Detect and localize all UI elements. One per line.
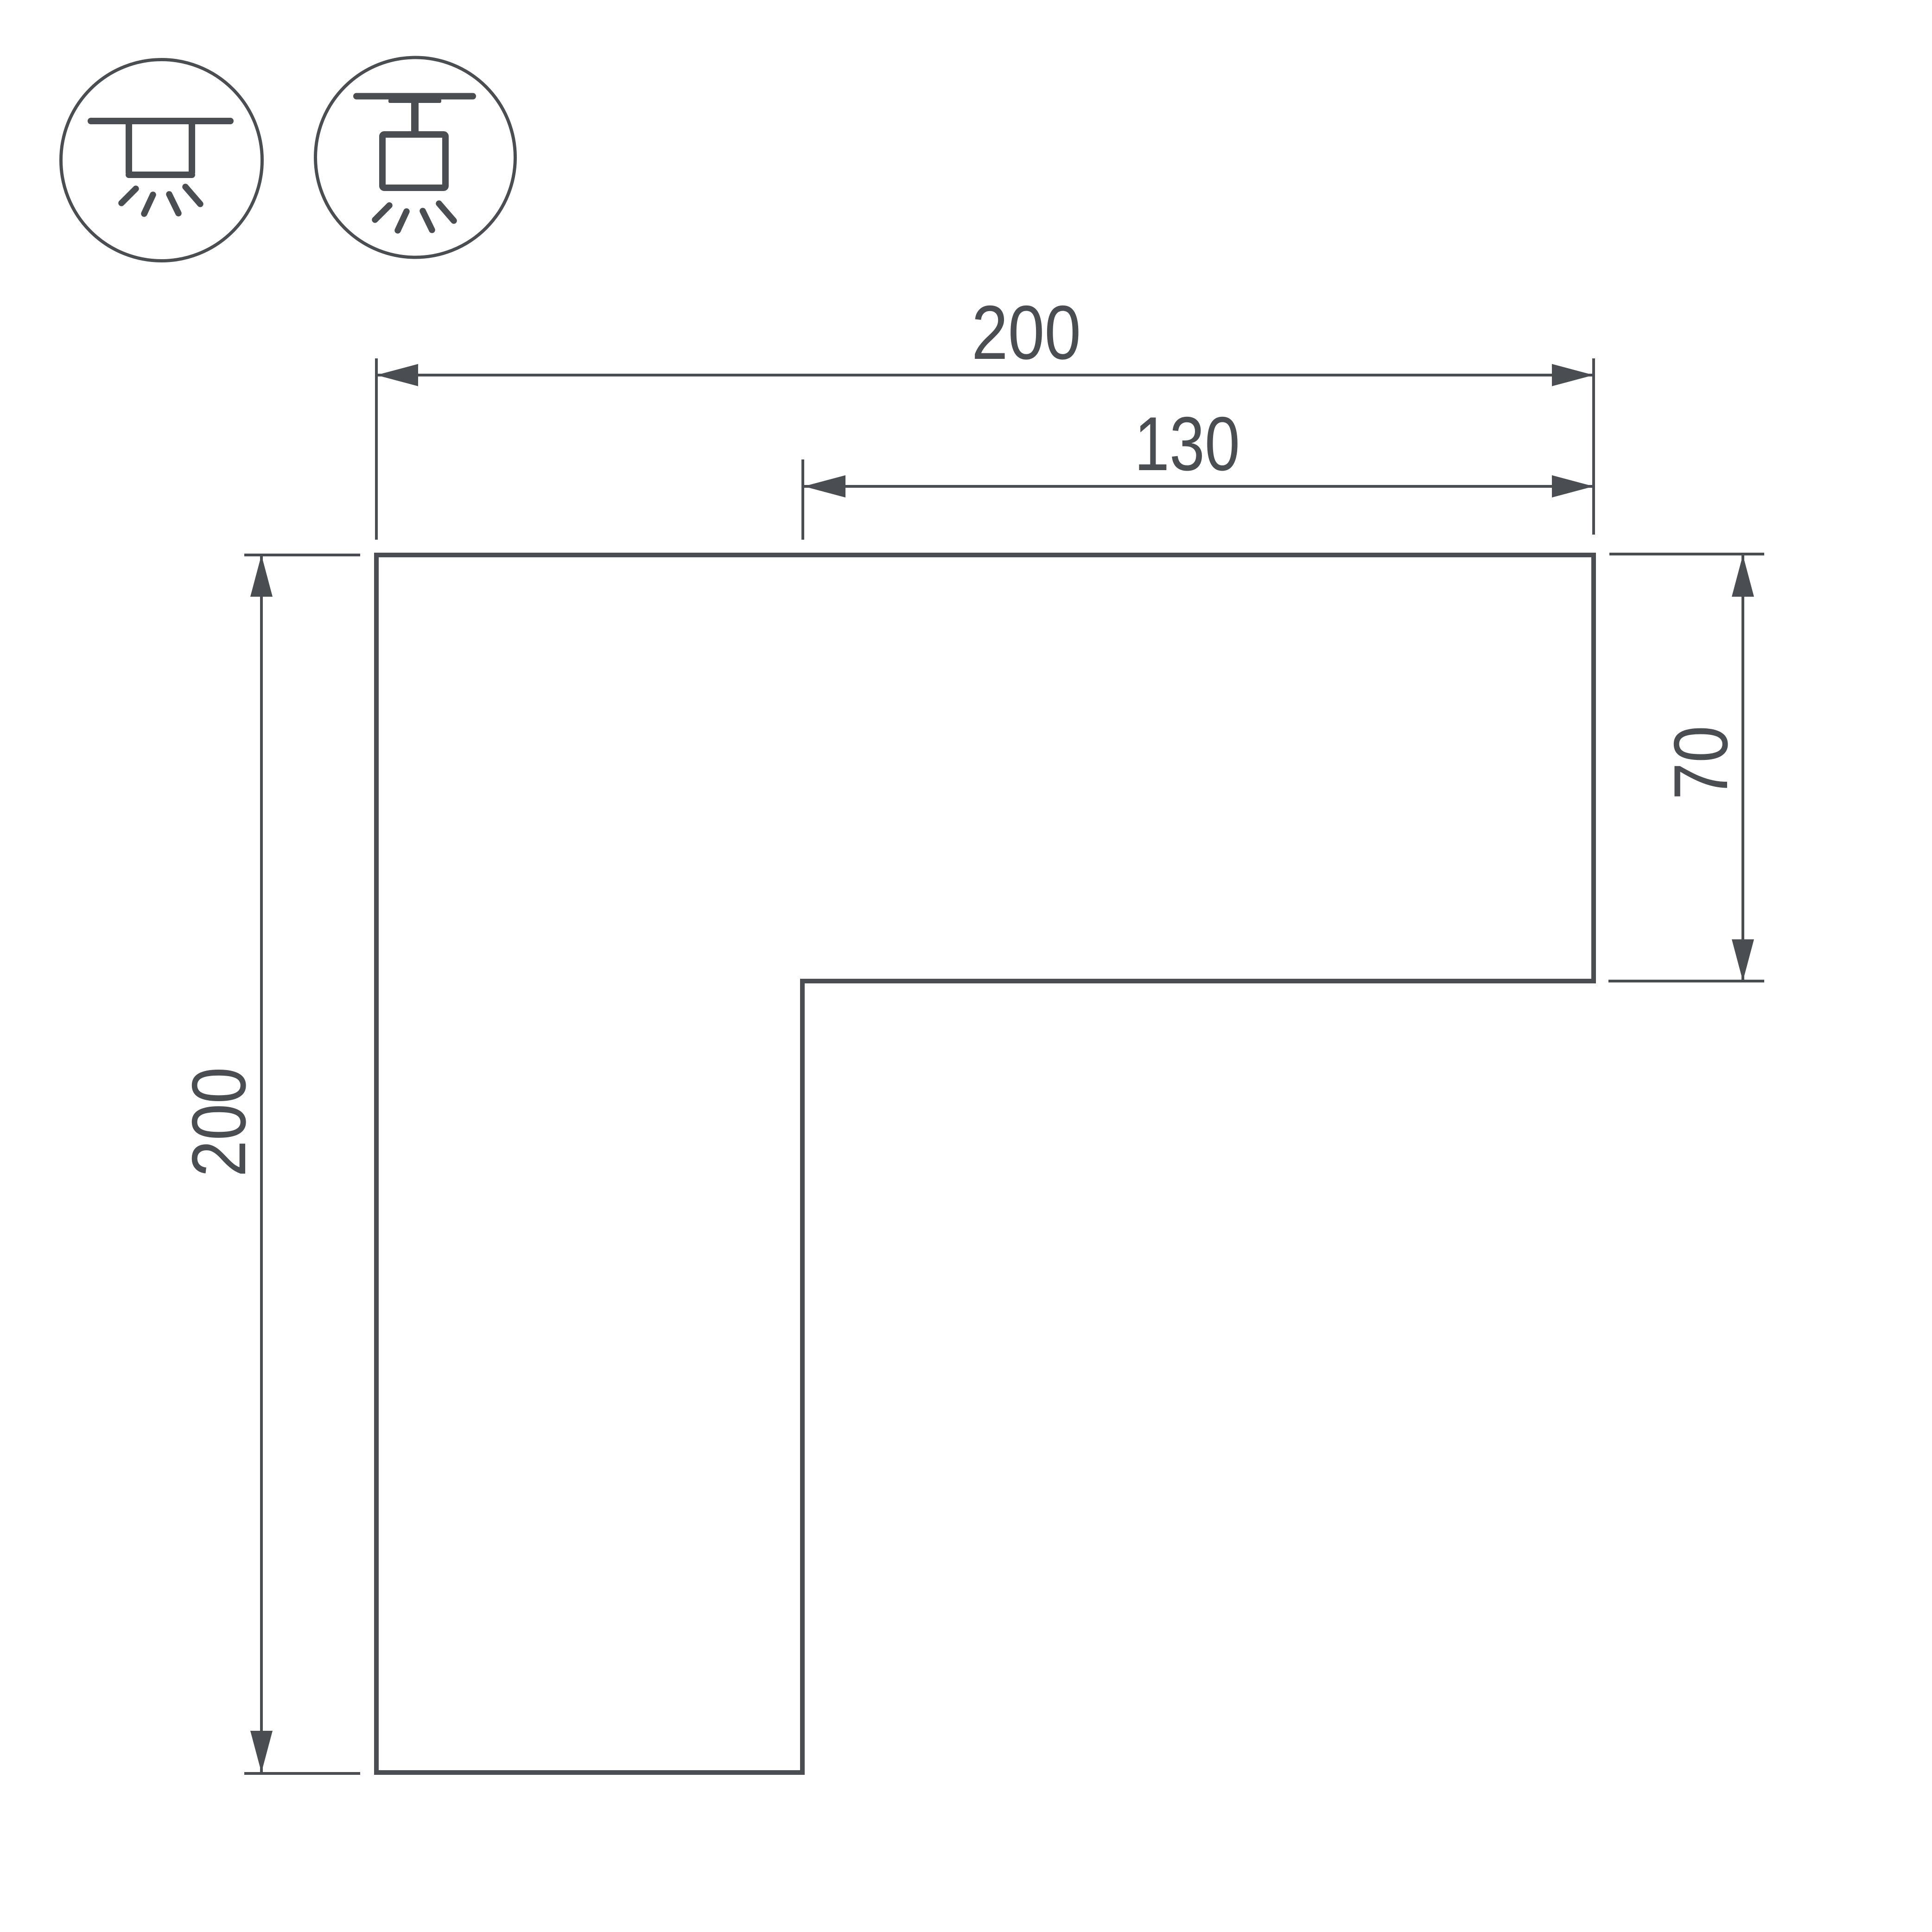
svg-text:200: 200 <box>972 290 1081 375</box>
svg-text:70: 70 <box>1658 726 1743 800</box>
svg-text:130: 130 <box>1134 401 1240 486</box>
svg-text:200: 200 <box>176 1067 261 1177</box>
